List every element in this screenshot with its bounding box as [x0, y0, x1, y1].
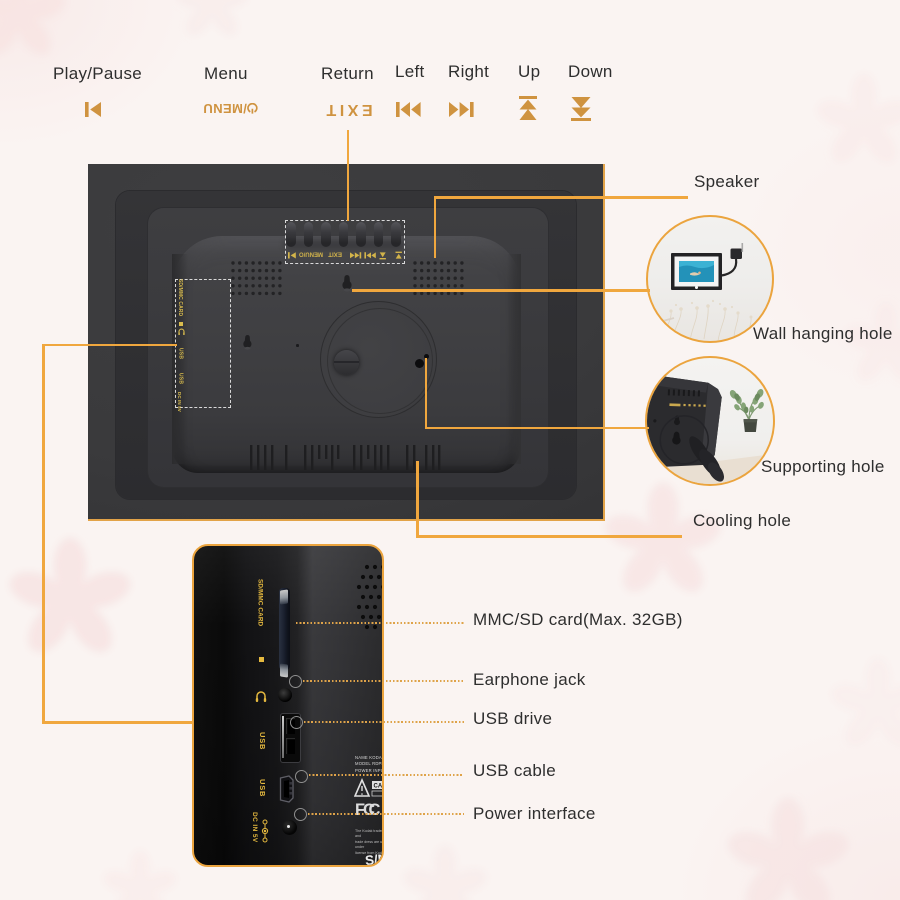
- svg-text:C: C: [369, 801, 381, 819]
- svg-text:CAUTION: CAUTION: [374, 784, 385, 790]
